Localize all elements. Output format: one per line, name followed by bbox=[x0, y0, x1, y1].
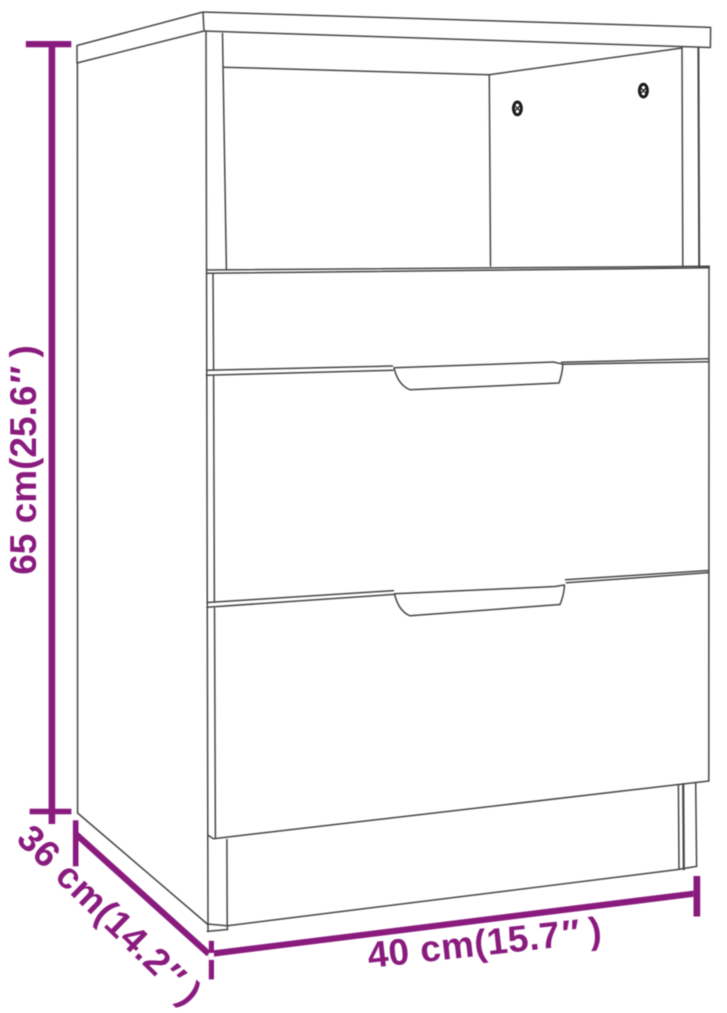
svg-text:65 cm(25.6″ ): 65 cm(25.6″ ) bbox=[3, 345, 44, 575]
